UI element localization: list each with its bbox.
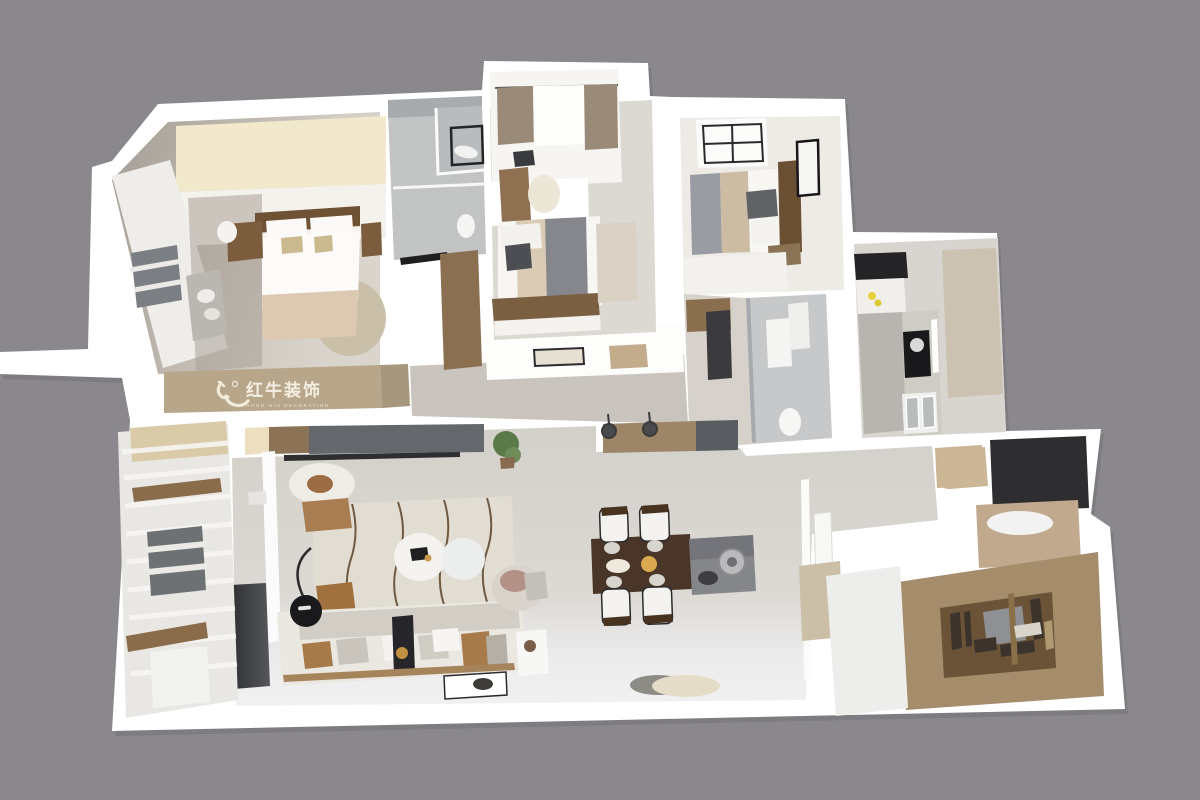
svg-text:红牛装饰: 红牛装饰 (246, 380, 322, 400)
svg-text:HONG NIU DECORATION: HONG NIU DECORATION (246, 403, 330, 408)
